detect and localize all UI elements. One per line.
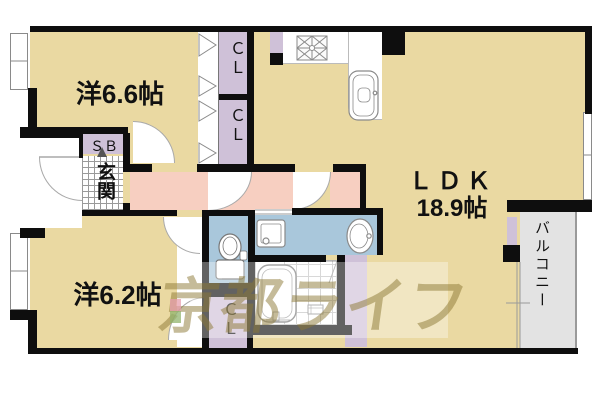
wall-hall-bottom-a [130,210,177,216]
wall-hall-top-a [123,164,152,172]
watermark: 京都ライフ [154,258,476,345]
wall-balcony-top [507,200,592,212]
watermark-logo-green [170,311,181,323]
wall-bottom [30,348,578,354]
wall-washroom-top [292,208,383,215]
wall-right-upper [585,26,592,114]
wall-balcony-block [503,245,520,262]
wall-washroom-right [377,208,383,255]
window-room2 [10,233,28,310]
wall-left-c [28,310,37,354]
washroom-floor [255,214,377,255]
window-ldk-right [583,112,592,200]
closet-mid-label: ＣＬ [223,107,247,145]
shoe-box-label: ＳＢ [84,136,124,156]
outside-right [577,212,592,348]
wall-entrance-bottom [82,210,130,216]
closet-top-label: ＣＬ [223,40,247,78]
wall-top [30,26,592,32]
window-room1 [10,33,28,90]
wall-porch-bottom [20,228,45,238]
balcony-right-edge [575,212,577,348]
wall-hall-top-b [197,164,295,172]
wall-entrance-right [123,133,130,167]
wall-hall-end [360,164,366,214]
wall-room1-bottomleft [20,127,82,138]
wall-kitchen-strip-block [270,53,283,65]
wall-kitchen-pillar [382,30,405,55]
wall-closet-divider [219,94,254,100]
watermark-logo-pink [170,299,181,311]
floor-plan: 洋6.6帖 洋6.2帖 ＬＤＫ 18.9帖 ＣＬ ＣＬ ＣＬ ＳＢ 玄関 バルコ… [0,0,600,400]
wall-shoebox-top [79,127,128,134]
kitchen-counter-side [348,31,382,120]
ldk-size-label: 18.9帖 [392,188,512,223]
closet-folddoor-strip [198,31,219,164]
room1-label: 洋6.6帖 [45,74,195,111]
balcony-label: バルコニー [531,220,552,310]
wall-shoebox-left [79,127,83,158]
kitchen-side-strip [270,31,283,53]
wall-hall-top-c [333,164,362,172]
entrance-label: 玄関 [91,162,118,200]
